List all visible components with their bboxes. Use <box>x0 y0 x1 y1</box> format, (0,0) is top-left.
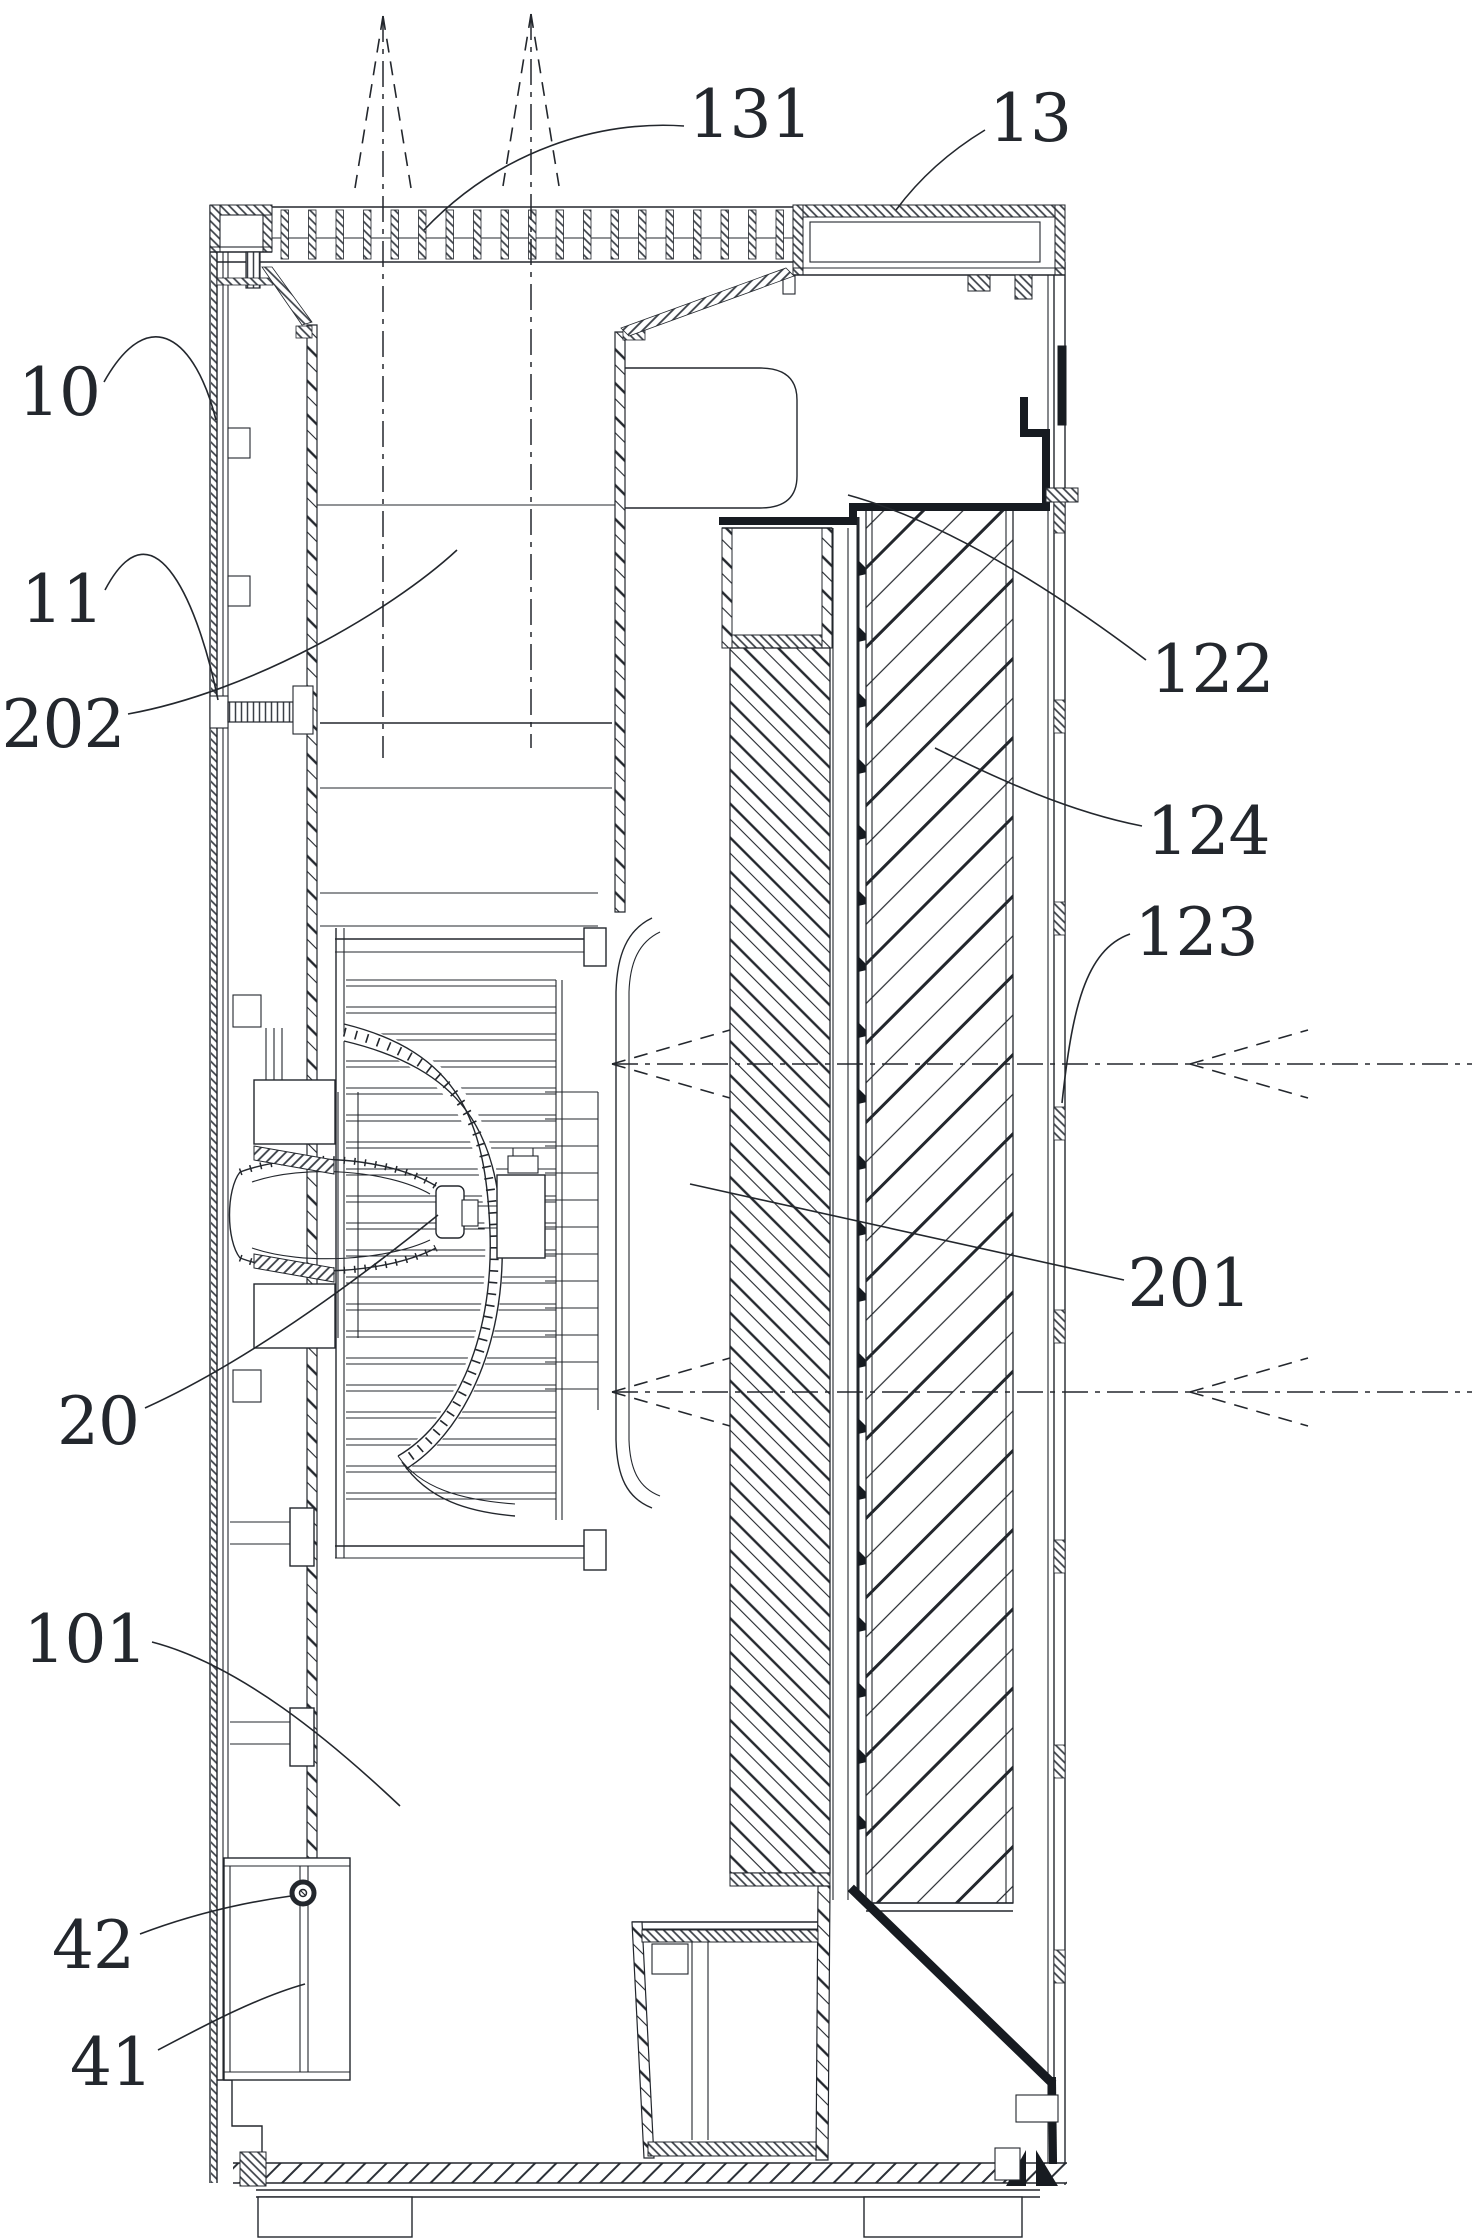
duct-right-wall <box>615 332 625 912</box>
callout-label-20: 20 <box>57 1383 139 1460</box>
inlet-arrowhead <box>1190 1358 1308 1392</box>
left-wall-core <box>211 205 217 2183</box>
grille-slat <box>776 210 784 259</box>
inlet-tick <box>1054 500 1065 533</box>
pre-filter <box>722 528 832 1886</box>
inlet-tick <box>1054 1745 1065 1778</box>
fan-assembly <box>228 428 660 1766</box>
grille-slat <box>391 210 399 259</box>
inlet-arrowhead <box>1190 1030 1308 1064</box>
grille-slat <box>639 210 647 259</box>
grille-slat <box>281 210 289 259</box>
patent-figure-page: 131131011202122124123201201014241 <box>0 0 1478 2240</box>
callout-label-131: 131 <box>689 76 812 153</box>
fan-motor <box>497 1148 545 1258</box>
callout-label-11: 11 <box>21 561 103 638</box>
filter-assembly <box>722 401 1078 2186</box>
filter-frame-bold <box>723 401 1046 521</box>
hepa-filter <box>866 507 1013 1911</box>
lower-brackets <box>230 1508 314 1766</box>
callout-label-42: 42 <box>52 1907 134 1984</box>
callout-label-10: 10 <box>18 354 100 431</box>
grille-slat <box>474 210 482 259</box>
grille-slat <box>666 210 674 259</box>
inlet-arrowhead <box>612 1030 730 1064</box>
grille-end-block <box>210 205 272 288</box>
bottom-left-step <box>217 2080 262 2162</box>
right-wall <box>1048 262 1065 2185</box>
base-and-feet <box>256 2190 1040 2237</box>
callout-label-124: 124 <box>1147 793 1270 870</box>
grille-slat <box>501 210 509 259</box>
callout-label-122: 122 <box>1151 631 1274 708</box>
impeller-shroud <box>344 1024 515 1516</box>
grille-slat <box>309 210 317 259</box>
grille-slats <box>281 210 784 259</box>
outlet-grille <box>210 205 793 288</box>
inlet-tick <box>1054 1107 1065 1140</box>
grille-slat <box>446 210 454 259</box>
inlet-tick <box>1054 1950 1065 1983</box>
callout-leader-101 <box>152 1642 400 1806</box>
funnel-slope <box>621 268 794 336</box>
callout-label-201: 201 <box>1128 1245 1251 1322</box>
callout-leader-123 <box>1062 934 1130 1103</box>
outlet-arrowhead <box>355 16 383 188</box>
right-foot <box>864 2197 1022 2237</box>
grille-slat <box>529 210 537 259</box>
bottom-floor <box>233 2163 1067 2183</box>
inlet-bellmouth <box>616 918 660 1508</box>
grille-slat <box>419 210 427 259</box>
duct-bolt <box>210 686 313 734</box>
top-cover <box>783 205 1065 299</box>
inlet-tick <box>1054 1540 1065 1573</box>
grille-slat <box>749 210 757 259</box>
grille-slat <box>694 210 702 259</box>
air-purifier-section-figure: 131131011202122124123201201014241 <box>0 0 1478 2240</box>
inlet-arrowhead <box>612 1358 730 1392</box>
outlet-duct <box>210 267 797 1858</box>
right-wall-inlet-ticks <box>1054 500 1065 1983</box>
box-screw <box>292 1882 314 1904</box>
grille-slat <box>364 210 372 259</box>
grille-slat <box>721 210 729 259</box>
callout-label-123: 123 <box>1135 894 1258 971</box>
callout-label-101: 101 <box>24 1601 147 1678</box>
callout-label-13: 13 <box>989 80 1071 157</box>
filter-bottom-support <box>854 1891 1050 2081</box>
grille-slat <box>336 210 344 259</box>
grille-slat <box>556 210 564 259</box>
grille-slat <box>611 210 619 259</box>
callout-leader-13 <box>896 130 985 210</box>
control-box <box>224 1858 350 2080</box>
callout-leader-10 <box>104 337 216 420</box>
inlet-tick <box>1054 902 1065 935</box>
callout-label-41: 41 <box>70 2024 152 2101</box>
inlet-tick <box>1054 700 1065 733</box>
grille-slat <box>584 210 592 259</box>
inlet-tick <box>1054 1310 1065 1343</box>
impeller-blades-right <box>545 1092 598 1389</box>
callout-label-202: 202 <box>2 686 125 763</box>
callout-leader-11 <box>105 554 218 700</box>
left-foot <box>258 2197 412 2237</box>
callout-layer: 131131011202122124123201201014241 <box>2 76 1274 2101</box>
chamber-box <box>625 368 797 508</box>
lower-tank <box>632 1886 830 2160</box>
